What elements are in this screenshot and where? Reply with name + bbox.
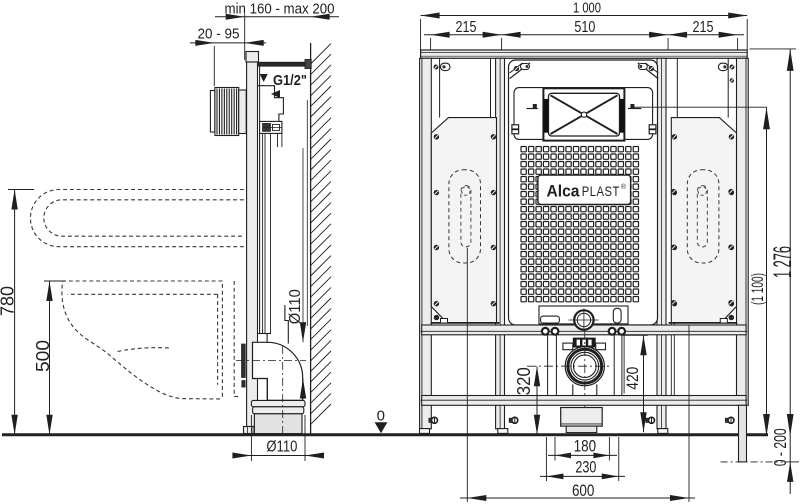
- svg-text:420: 420: [624, 367, 642, 390]
- svg-text:320: 320: [514, 367, 534, 395]
- svg-text:215: 215: [693, 19, 714, 36]
- svg-text:(1 100): (1 100): [749, 273, 767, 305]
- svg-text:Ø110: Ø110: [266, 439, 297, 456]
- svg-text:min 160 - max 200: min 160 - max 200: [225, 2, 335, 18]
- svg-text:Alca: Alca: [547, 182, 580, 201]
- svg-text:G1/2": G1/2": [273, 72, 307, 89]
- svg-text:1 000: 1 000: [573, 0, 601, 17]
- svg-text:1 276: 1 276: [769, 246, 797, 278]
- svg-text:215: 215: [456, 19, 477, 36]
- svg-text:230: 230: [575, 457, 596, 476]
- svg-text:20 - 95: 20 - 95: [198, 26, 240, 42]
- svg-text:500: 500: [33, 340, 53, 372]
- svg-text:600: 600: [572, 481, 595, 500]
- svg-text:0: 0: [377, 408, 385, 425]
- svg-text:180: 180: [574, 436, 597, 455]
- svg-text:780: 780: [0, 286, 18, 316]
- svg-text:PLAST: PLAST: [582, 184, 620, 199]
- svg-text:®: ®: [621, 183, 627, 191]
- svg-text:0 - 200: 0 - 200: [770, 428, 790, 466]
- svg-text:510: 510: [574, 19, 595, 36]
- svg-text:Ø110: Ø110: [287, 289, 304, 324]
